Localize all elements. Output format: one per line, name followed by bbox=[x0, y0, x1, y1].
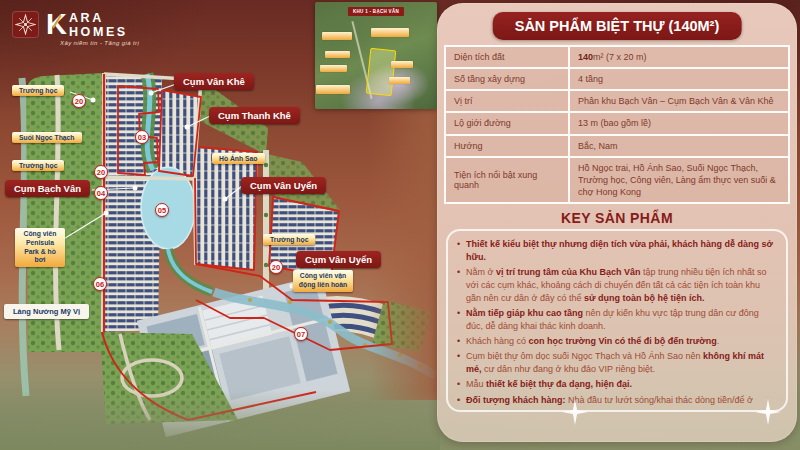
map-badge: 07 bbox=[294, 327, 308, 341]
row-label: Diện tích đất bbox=[446, 47, 570, 67]
row-label: Vị trí bbox=[446, 91, 570, 111]
key-points-box: Thiết kế kiểu biệt thự nhưng diện tích v… bbox=[446, 229, 788, 412]
map-label: Trường học bbox=[12, 160, 64, 171]
key-point: Khách hàng có con học trường Vin có thể … bbox=[456, 335, 776, 348]
inset-highlight-zone bbox=[366, 48, 397, 96]
key-point: Đối tượng khách hàng: Nhà đầu tư lướt só… bbox=[456, 394, 776, 407]
brand-name-bottom: HOMES bbox=[69, 26, 128, 40]
inset-mini-label bbox=[316, 85, 350, 94]
table-row: Số tầng xây dựng4 tầng bbox=[446, 69, 788, 91]
map-badge: 20 bbox=[269, 260, 283, 274]
inset-mini-label bbox=[325, 51, 350, 58]
row-value: Phân khu Bạch Vân – Cụm Bạch Vân & Vân K… bbox=[570, 91, 788, 111]
slide: K ARA HOMES Xây niềm tin - Tăng giá trị … bbox=[0, 0, 800, 450]
key-point: Cụm biệt thự ôm dọc suối Ngọc Thạch và H… bbox=[456, 350, 776, 376]
row-value: 4 tầng bbox=[570, 69, 788, 89]
panel-title: SẢN PHẨM BIỆT THỰ (140M²) bbox=[493, 12, 742, 40]
product-panel: SẢN PHẨM BIỆT THỰ (140M²) Diện tích đất1… bbox=[437, 3, 797, 442]
map-badge: 06 bbox=[93, 277, 107, 291]
map-label: Trường học bbox=[12, 85, 64, 96]
table-row: Tiện ích nổi bật xung quanhHồ Ngọc trai,… bbox=[446, 158, 788, 202]
key-point: Nằm tiếp giáp khu cao tầng nên dự kiến k… bbox=[456, 307, 776, 333]
key-point: Thiết kế kiểu biệt thự nhưng diện tích v… bbox=[456, 238, 776, 264]
map-label: Công viên Penisula Park & hồ bơi bbox=[15, 228, 65, 267]
row-label: Lộ giới đường bbox=[446, 113, 570, 133]
brand-k: K bbox=[46, 11, 67, 39]
compass-icon bbox=[12, 11, 39, 38]
map-badge: 05 bbox=[155, 203, 169, 217]
map-badge: 03 bbox=[135, 130, 149, 144]
key-points-list: Thiết kế kiểu biệt thự nhưng diện tích v… bbox=[456, 238, 776, 407]
map-label: Cụm Bạch Vân bbox=[5, 180, 90, 197]
map-label: Cụm Vân Uyển bbox=[296, 251, 381, 268]
row-label: Tiện ích nổi bật xung quanh bbox=[446, 158, 570, 202]
map-label: Cụm Vân Uyển bbox=[241, 177, 326, 194]
brand-logo: K ARA HOMES Xây niềm tin - Tăng giá trị bbox=[12, 11, 139, 46]
inset-mini-label bbox=[389, 77, 410, 84]
brand-name-top: ARA bbox=[69, 12, 128, 26]
inset-title: KHU 1 - BẠCH VÂN bbox=[348, 7, 404, 16]
map-badge: 04 bbox=[94, 186, 108, 200]
table-row: Diện tích đất140m² (7 x 20 m) bbox=[446, 47, 788, 69]
map-label: Trường học bbox=[263, 234, 315, 245]
map-label: Suối Ngọc Thạch bbox=[12, 132, 82, 143]
map-badge: 20 bbox=[94, 165, 108, 179]
row-label: Hướng bbox=[446, 136, 570, 156]
brand-tagline: Xây niềm tin - Tăng giá trị bbox=[60, 40, 139, 46]
map-label: Cụm Thanh Khê bbox=[209, 107, 300, 124]
row-value: 13 m (bao gồm lề) bbox=[570, 113, 788, 133]
map-label: Hồ Ánh Sao bbox=[212, 153, 265, 164]
key-point: Nằm ở vị trí trung tâm của Khu Bạch Vân … bbox=[456, 266, 776, 305]
map-label: Làng Nướng Mỹ Vị bbox=[4, 304, 89, 319]
key-heading: KEY SẢN PHẨM bbox=[437, 210, 797, 226]
table-row: HướngBắc, Nam bbox=[446, 136, 788, 158]
spec-table: Diện tích đất140m² (7 x 20 m)Số tầng xây… bbox=[444, 45, 790, 204]
housing-van-uyen-west bbox=[194, 148, 258, 270]
row-value: 140m² (7 x 20 m) bbox=[570, 47, 788, 67]
inset-mini-label bbox=[322, 32, 352, 40]
inset-mini-label bbox=[371, 28, 409, 37]
table-row: Lộ giới đường13 m (bao gồm lề) bbox=[446, 113, 788, 135]
row-label: Số tầng xây dựng bbox=[446, 69, 570, 89]
row-value: Bắc, Nam bbox=[570, 136, 788, 156]
inset-mini-label bbox=[320, 65, 347, 72]
inset-mini-label bbox=[391, 61, 413, 68]
key-point: Mẫu thiết kế biệt thự đa dạng, hiện đại. bbox=[456, 378, 776, 391]
map-label: Cụm Vân Khê bbox=[174, 73, 254, 90]
row-value: Hồ Ngọc trai, Hồ Ánh Sao, Suối Ngọc Thạc… bbox=[570, 158, 788, 202]
table-row: Vị tríPhân khu Bạch Vân – Cụm Bạch Vân &… bbox=[446, 91, 788, 113]
map-label: Công viên vận động liên hoàn bbox=[293, 270, 353, 292]
inset-overview-map: KHU 1 - BẠCH VÂN bbox=[315, 2, 437, 109]
map-badge: 20 bbox=[72, 94, 86, 108]
